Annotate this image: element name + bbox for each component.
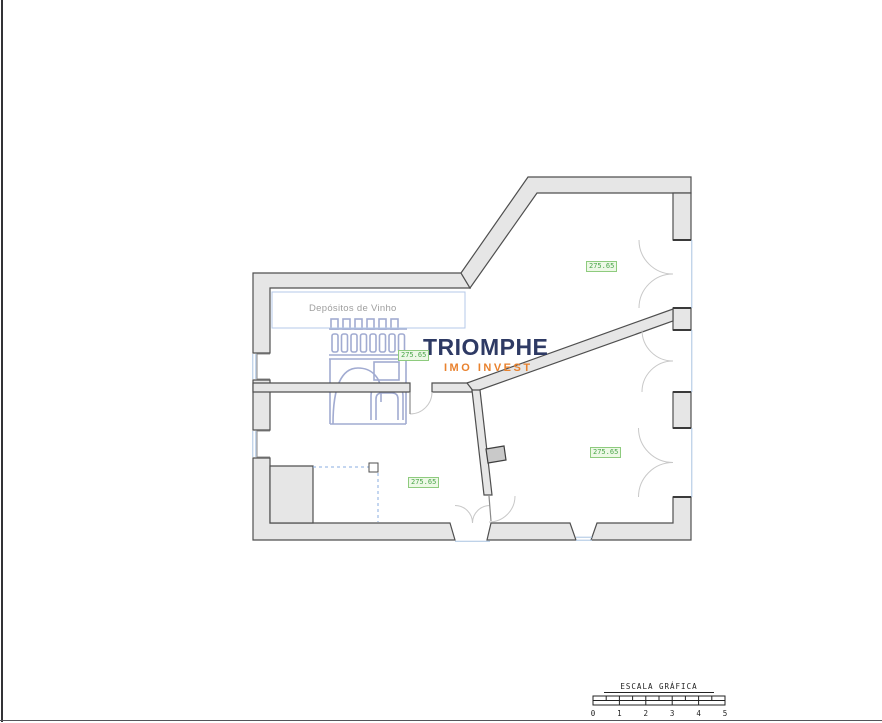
sheet-border-left <box>1 0 3 722</box>
drawing-sheet: TRIOMPHE IMO INVEST Depósitos de Vinho 2… <box>0 0 882 723</box>
elevation-label: 275.65 <box>398 350 429 361</box>
door-jambs <box>673 240 691 497</box>
floor-plan-drawing <box>0 0 882 723</box>
scale-tick: 0 <box>583 709 603 718</box>
sheet-border-bottom <box>0 720 882 721</box>
scale-tick: 5 <box>715 709 735 718</box>
scale-tick: 3 <box>662 709 682 718</box>
elevation-label: 275.65 <box>586 261 617 272</box>
scale-tick: 2 <box>636 709 656 718</box>
wall-stub <box>486 446 506 463</box>
scale-bar-graphic <box>590 695 728 709</box>
scale-bar-title: ESCALA GRÁFICA <box>604 682 714 693</box>
scale-tick-labels: 0 1 2 3 4 5 <box>590 709 728 719</box>
scale-tick: 1 <box>609 709 629 718</box>
logo-tagline: IMO INVEST <box>444 362 533 374</box>
scale-tick: 4 <box>689 709 709 718</box>
dashed-guides <box>313 467 378 522</box>
scale-bar: ESCALA GRÁFICA 0 1 2 3 4 5 <box>590 682 728 709</box>
guide-square-marker <box>369 463 378 472</box>
room-label: Depósitos de Vinho <box>309 303 397 314</box>
logo-wordmark: TRIOMPHE <box>423 334 543 361</box>
elevation-label: 275.65 <box>590 447 621 458</box>
elevation-label: 275.65 <box>408 477 439 488</box>
